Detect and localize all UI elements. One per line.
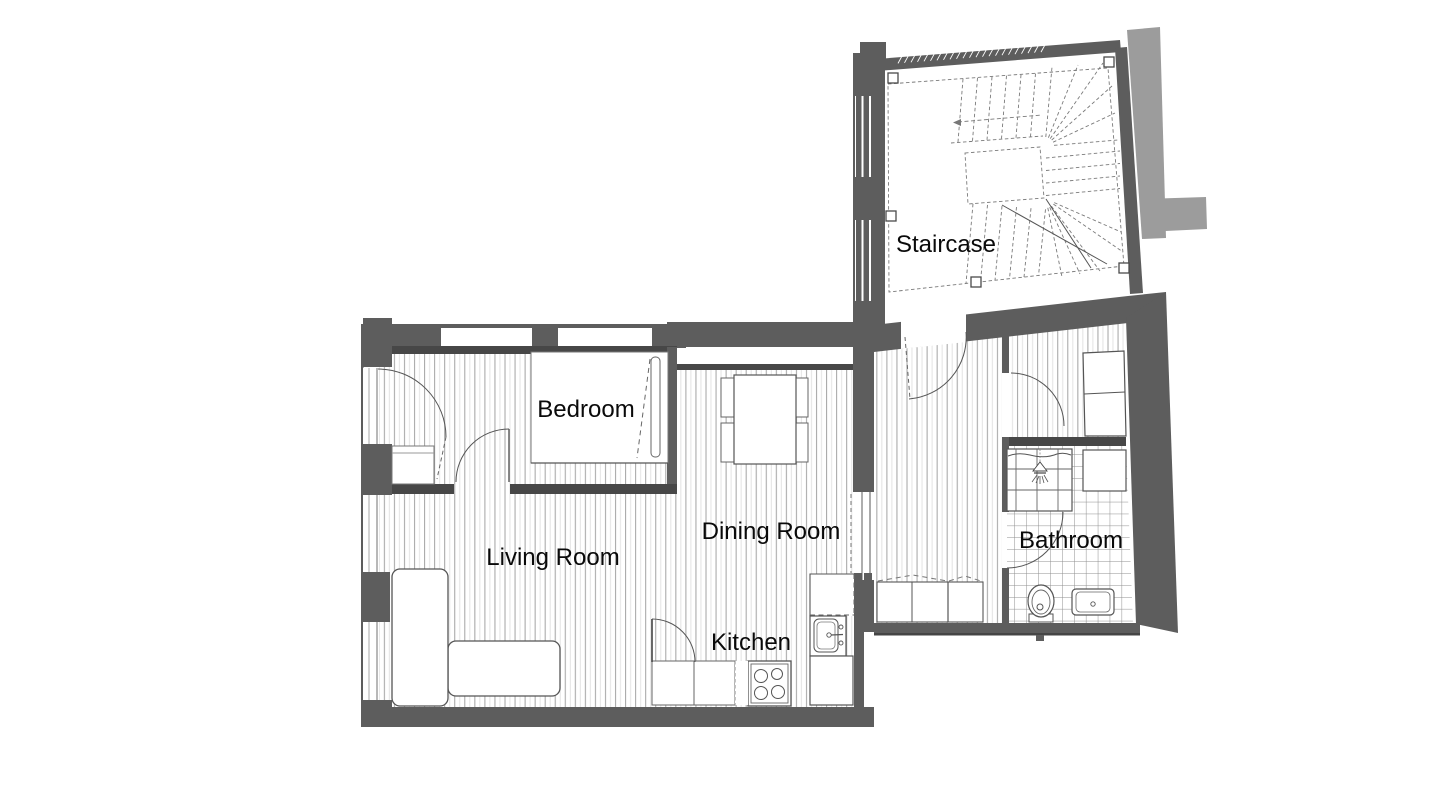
svg-text:Kitchen: Kitchen [711,629,791,656]
svg-text:Bathroom: Bathroom [1019,527,1123,554]
svg-text:Dining Room: Dining Room [702,518,841,545]
svg-text:Staircase: Staircase [896,231,996,258]
svg-text:Bedroom: Bedroom [537,396,634,423]
svg-text:Living Room: Living Room [486,544,619,571]
